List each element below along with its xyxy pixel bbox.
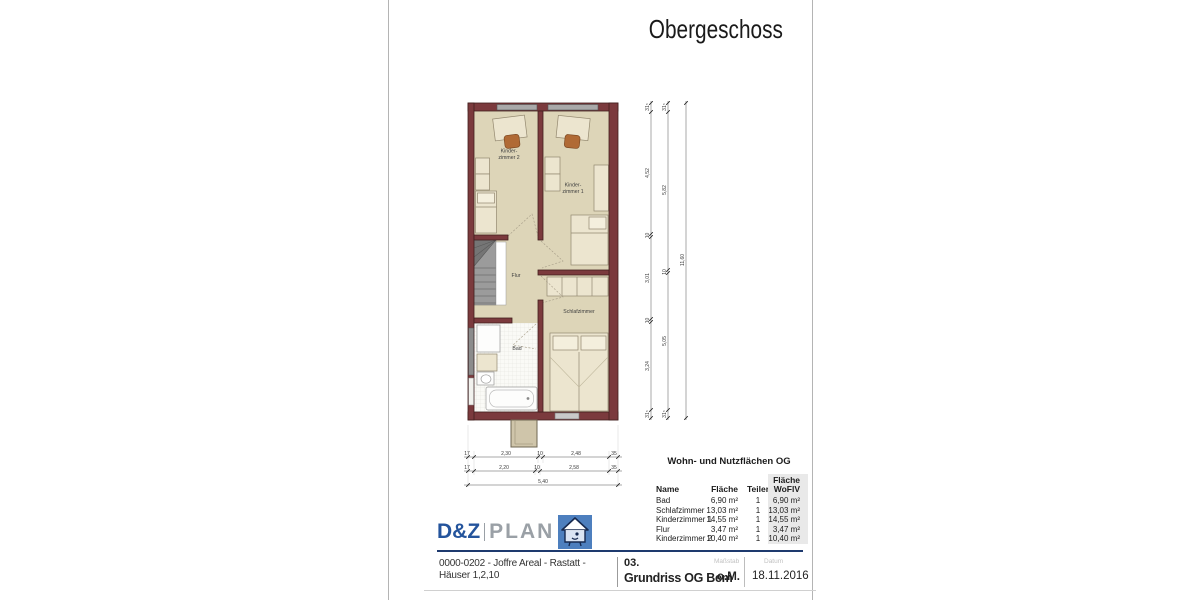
svg-text:10: 10 <box>645 233 651 239</box>
room-label-bad: Bad <box>512 346 521 352</box>
wardrobe <box>476 158 490 174</box>
wardrobe-row <box>547 277 608 296</box>
table-row-wofiv: 6,90 m² <box>768 496 808 506</box>
svg-text:17: 17 <box>464 451 470 457</box>
company-logo: D&Z PLAN <box>437 514 592 550</box>
page-bottom-rule <box>424 590 816 591</box>
table-title: Wohn- und Nutzflächen OG <box>650 456 808 467</box>
svg-text:4,52: 4,52 <box>645 168 651 178</box>
stairs <box>474 240 506 305</box>
svg-text:5,82: 5,82 <box>662 185 668 195</box>
titleblock-divider <box>744 557 745 587</box>
col-header-wofiv-line2: WoFlV <box>774 485 800 494</box>
shower <box>477 325 500 352</box>
svg-text:2,48: 2,48 <box>571 451 581 457</box>
table-row-area: 10,40 m² <box>714 534 748 544</box>
bed <box>571 215 608 265</box>
col-header-flaeche: Fläche <box>714 474 748 496</box>
svg-text:5,05: 5,05 <box>662 336 668 346</box>
table-row-wofiv: 3,47 m² <box>768 525 808 535</box>
cabinet <box>477 354 497 371</box>
wardrobe <box>545 157 560 174</box>
double-bed <box>550 333 608 411</box>
table-row-area: 13,03 m² <box>714 506 748 516</box>
room-label-schlafzimmer: Schlafzimmer <box>563 309 595 315</box>
table-row-area: 14,55 m² <box>714 515 748 525</box>
table-row-teiler: 1 <box>748 496 768 506</box>
dim-labels-bottom: 17 2,30 10 2,48 35 17 2,20 10 2,58 35 5,… <box>464 451 617 485</box>
area-table: Wohn- und Nutzflächen OG Name Fläche Tei… <box>650 456 808 544</box>
chair <box>504 134 520 149</box>
table-row-wofiv: 13,03 m² <box>768 506 808 516</box>
project-info: 0000-0202 - Joffre Areal - Rastatt - Häu… <box>439 558 586 582</box>
shelf <box>594 165 609 211</box>
table-row-teiler: 1 <box>748 515 768 525</box>
svg-text:2,20: 2,20 <box>499 465 509 471</box>
shaft <box>469 328 474 375</box>
svg-text:11,60: 11,60 <box>680 254 686 266</box>
svg-text:2,58: 2,58 <box>569 465 579 471</box>
svg-text:10: 10 <box>537 451 543 457</box>
svg-text:31⁵: 31⁵ <box>662 410 668 418</box>
svg-text:10: 10 <box>534 465 540 471</box>
svg-text:3,24: 3,24 <box>645 361 651 371</box>
room-label-kinderzimmer1: Kinder- <box>565 183 582 189</box>
svg-text:31⁵: 31⁵ <box>645 410 651 418</box>
table-row-name: Bad <box>650 496 714 506</box>
col-header-wofiv: Fläche WoFlV <box>768 474 808 496</box>
bed <box>476 191 497 233</box>
svg-text:10: 10 <box>645 318 651 324</box>
title-block: 0000-0202 - Joffre Areal - Rastatt - Häu… <box>437 554 803 590</box>
svg-text:2,30: 2,30 <box>501 451 511 457</box>
wardrobe <box>476 174 490 190</box>
table-row-area: 6,90 m² <box>714 496 748 506</box>
project-line-2: Häuser 1,2,10 <box>439 570 586 582</box>
room-label-kinderzimmer2: Kinder- <box>501 149 518 155</box>
svg-text:3,01: 3,01 <box>645 273 651 283</box>
col-header-name: Name <box>650 474 714 496</box>
toilet <box>477 372 494 385</box>
floor-plan: Kinder- zimmer 2 Kinder- zimmer 1 Flur S… <box>440 95 710 495</box>
logo-brand-primary: D&Z <box>437 520 480 544</box>
scale-value: o.M. <box>717 571 740 583</box>
project-line-1: 0000-0202 - Joffre Areal - Rastatt - <box>439 558 586 570</box>
table-row-teiler: 1 <box>748 534 768 544</box>
col-header-teiler: Teiler <box>748 474 768 496</box>
date-label: Datum <box>764 558 783 565</box>
chimney <box>511 420 537 447</box>
room-label-kinderzimmer2: zimmer 2 <box>498 155 519 161</box>
svg-text:5,40: 5,40 <box>538 479 548 485</box>
dimension-chain-right: 31⁵ 4,52 10 3,01 10 3,24 31⁵ 31⁵ 5,82 10… <box>645 101 688 420</box>
table-row-wofiv: 14,55 m² <box>768 515 808 525</box>
table-row-name: Kinderzimmer 1 <box>650 515 714 525</box>
titleblock-divider <box>617 557 618 587</box>
scale-label: Maßstab <box>714 558 739 565</box>
table-row-wofiv: 10,40 m² <box>768 534 808 544</box>
table-row-name: Flur <box>650 525 714 535</box>
sheet-number: 03. <box>624 557 639 569</box>
house-logo-icon <box>558 515 592 549</box>
bathtub <box>486 387 537 410</box>
svg-text:35: 35 <box>611 451 617 457</box>
niche <box>469 378 474 405</box>
svg-text:31⁵: 31⁵ <box>645 103 651 111</box>
svg-text:10: 10 <box>662 269 668 275</box>
page-right-edge <box>812 0 813 600</box>
logo-brand-secondary: PLAN <box>489 520 554 544</box>
dimension-chain-bottom: 17 2,30 10 2,48 35 17 2,20 10 2,58 35 5,… <box>464 425 622 487</box>
table-row-teiler: 1 <box>748 525 768 535</box>
page-left-edge <box>388 0 389 600</box>
svg-text:35: 35 <box>611 465 617 471</box>
table-row-teiler: 1 <box>748 506 768 516</box>
room-label-flur: Flur <box>512 273 521 279</box>
titleblock-top-rule <box>437 550 803 552</box>
page-title: Obergeschoss <box>596 14 836 45</box>
logo-divider <box>484 523 485 541</box>
table-row-area: 3,47 m² <box>714 525 748 535</box>
svg-text:17: 17 <box>464 465 470 471</box>
table-row-name: Kinderzimmer 2 <box>650 534 714 544</box>
svg-text:31⁵: 31⁵ <box>662 103 668 111</box>
room-label-kinderzimmer1: zimmer 1 <box>562 189 583 195</box>
date-value: 18.11.2016 <box>752 570 809 582</box>
table-row-name: Schlafzimmer <box>650 506 714 516</box>
wardrobe <box>545 174 560 191</box>
chair <box>564 134 580 148</box>
